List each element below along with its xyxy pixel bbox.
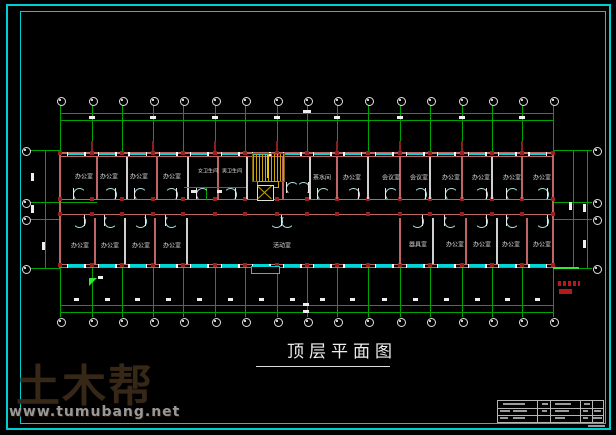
window [160,153,176,156]
grid-bubble [274,97,283,106]
grid-line-vertical [183,268,184,317]
column-marker [151,197,155,201]
window-frame [67,152,69,156]
dim-text [303,303,309,306]
window-frame [423,264,425,268]
dim-text [290,298,295,301]
grid-bubble [180,97,189,106]
column-marker [428,212,432,216]
room-label-top: 办公室 [343,173,361,182]
door-leaf [145,215,146,226]
column-marker [305,151,309,155]
window-frame [498,264,500,268]
window-frame [283,264,285,268]
grid-bubble-number [244,320,246,322]
grid-bubble [119,97,128,106]
door-arc [281,215,294,228]
door-leaf [196,188,197,199]
wall-exterior [60,267,553,269]
grid-line-vertical [368,104,369,152]
grid-bubble-number [91,320,93,322]
window [130,153,146,156]
window [407,153,423,156]
door-leaf [104,215,105,226]
window-frame [128,264,130,268]
column-marker [335,151,339,155]
dim-text [42,242,45,250]
dim-text [459,116,465,119]
door-arc [134,188,147,201]
door-arc [104,215,117,228]
dim-text [397,116,403,119]
window-frame [115,264,117,268]
window-frame [437,264,439,268]
column-marker [90,212,94,216]
partition-wall [461,157,463,199]
column-marker [335,263,339,267]
wall-exterior [552,152,554,268]
grid-line-vertical [122,104,123,152]
window [530,264,546,267]
dim-text [274,116,280,119]
column-marker [520,263,524,267]
window [376,153,392,156]
grid-bubble [459,318,468,327]
grid-line-horizontal [28,219,60,220]
column-marker [551,197,555,201]
partition-wall [309,157,311,199]
grid-line-vertical [245,268,246,317]
partition-wall [465,218,467,264]
column-marker [90,197,94,201]
grid-bubble-number [24,218,26,220]
column-marker [335,212,339,216]
dim-text [197,298,202,301]
door-arc [385,188,398,201]
partition-wall [187,157,189,199]
grid-line-horizontal [28,150,60,151]
door-leaf [486,188,487,199]
grid-bubble [489,97,498,106]
grid-bubble-number [276,320,278,322]
highlighted-line [553,267,579,270]
dim-line [60,113,553,114]
partition-wall [429,157,431,199]
grid-bubble [22,216,31,225]
area-note-text [558,281,580,286]
dim-line [573,150,574,268]
grid-bubble [427,318,436,327]
door-leaf [547,188,548,199]
grid-line-vertical [553,104,554,152]
column-marker [520,212,524,216]
stair-run [252,153,285,182]
column-marker [213,263,217,267]
grid-bubble-number [491,320,493,322]
room-label-bottom: 办公室 [446,240,464,249]
window [376,264,392,267]
grid-bubble [519,97,528,106]
window-frame [190,152,192,156]
title-underline [256,366,390,367]
grid-bubble-number [276,99,278,101]
grid-bubble-number [429,320,431,322]
partition-wall [154,218,156,264]
partition-wall [496,218,498,264]
grid-bubble-number [521,320,523,322]
grid-bubble [397,97,406,106]
window [499,264,515,267]
window-frame [515,264,517,268]
window-frame [343,152,345,156]
room-label-bottom: 办公室 [163,241,181,250]
column-marker [398,212,402,216]
column-marker [181,263,185,267]
window-frame [546,152,548,156]
grid-bubble [365,318,374,327]
window [407,264,423,267]
window-frame [146,264,148,268]
window-frame [375,152,377,156]
room-label-top: 办公室 [503,173,521,182]
window-frame [498,152,500,156]
column-marker [243,212,247,216]
window-frame [98,152,100,156]
door-leaf [176,188,177,199]
grid-bubble [57,97,66,106]
column-marker [243,263,247,267]
window-frame [528,152,530,156]
door-leaf [444,215,445,226]
column-marker [58,151,62,155]
grid-bubble [89,97,98,106]
column-marker [151,151,155,155]
title-block-text [500,417,508,419]
room-label-top: 办公室 [75,172,93,181]
grid-line-vertical [462,268,463,317]
window-frame [300,152,302,156]
grid-bubble [365,97,374,106]
partition-wall [432,218,434,264]
door-arc [444,215,457,228]
door-leaf [422,215,423,226]
title-block-text [584,403,590,405]
partition-wall [399,218,401,264]
drawing-title: 顶层平面图 [287,337,397,362]
title-block-text [583,417,588,419]
column-marker [428,151,432,155]
window-frame [176,264,178,268]
grid-bubble [22,199,31,208]
grid-bubble-number [306,99,308,101]
dim-text [135,298,140,301]
window-frame [313,264,315,268]
title-block-divider [537,400,538,423]
porch-outline [251,266,280,274]
door-leaf [385,188,386,199]
stair-rail [267,155,269,178]
dim-text [413,298,418,301]
door-leaf [286,182,287,193]
title-block-text [542,403,548,405]
door-arc [445,188,458,201]
column-marker [90,151,94,155]
window-frame [176,152,178,156]
title-block-text [555,410,569,412]
title-block-text [513,410,527,412]
title-block [497,400,604,423]
grid-bubble [550,318,559,327]
grid-bubble [334,97,343,106]
grid-bubble-number [24,149,26,151]
grid-bubble-number [367,320,369,322]
grid-bubble [150,318,159,327]
grid-bubble [304,318,313,327]
window-frame [159,152,161,156]
window-frame [84,152,86,156]
partition-wall [526,218,528,264]
grid-bubble-number [152,320,154,322]
window-frame [392,152,394,156]
grid-bubble-number [595,201,597,203]
dim-text [444,298,449,301]
window-frame [128,152,130,156]
grid-bubble-number [399,99,401,101]
grid-bubble [459,97,468,106]
column-marker [398,151,402,155]
dim-text [535,298,540,301]
grid-bubble [304,97,313,106]
room-label-bottom: 器具室 [409,240,427,249]
grid-bubble-number [595,267,597,269]
window [438,264,454,267]
title-block-divider [580,400,581,423]
grid-bubble-number [552,320,554,322]
grid-bubble-number [121,320,123,322]
dim-line [587,150,588,268]
grid-bubble [22,147,31,156]
grid-bubble-number [214,99,216,101]
room-label-bottom: 办公室 [502,240,520,249]
dim-text [334,116,340,119]
dim-text [212,116,218,119]
window-frame [528,264,530,268]
window [68,153,84,156]
grid-line-vertical [492,104,493,152]
dim-text [350,298,355,301]
partition-wall [96,157,98,199]
dim-text [303,110,311,113]
window-frame [238,264,240,268]
title-block-text [555,403,571,405]
window-frame [454,152,456,156]
grid-bubble [593,265,602,274]
window [99,264,115,267]
dim-text [583,204,586,212]
grid-bubble [334,318,343,327]
grid-bubble [274,318,283,327]
dim-text [320,298,325,301]
window-frame [437,152,439,156]
partition-wall [94,218,96,264]
window-frame [67,264,69,268]
window-frame [546,264,548,268]
grid-line-vertical [430,104,431,152]
window-frame [454,264,456,268]
window-frame [392,264,394,268]
dim-line [60,120,553,121]
window-frame [515,152,517,156]
dim-text [569,202,572,210]
door-leaf [547,215,548,226]
grid-bubble [593,147,602,156]
column-marker [490,263,494,267]
grid-bubble [489,318,498,327]
room-label-bottom: 办公室 [132,241,150,250]
window-frame [221,264,223,268]
cad-sheet: 办公室办公室办公室办公室女卫生间男卫生间茶水间办公室会议室会议室办公室办公室办公… [0,0,616,435]
grid-line-horizontal [28,268,60,269]
door-leaf [235,188,236,199]
snap-marker-tick [98,276,103,279]
window-frame [115,152,117,156]
dim-text [475,298,480,301]
room-label-bottom: 办公室 [101,241,119,250]
column-marker [213,212,217,216]
grid-bubble-number [59,99,61,101]
title-block-text [513,417,525,419]
room-label-bottom: 办公室 [71,241,89,250]
room-label-top: 办公室 [100,172,118,181]
door-leaf [506,215,507,226]
grid-bubble [397,318,406,327]
partition-wall [367,157,369,199]
column-marker [305,212,309,216]
dim-text [31,205,34,213]
grid-bubble-number [461,99,463,101]
column-marker [243,151,247,155]
title-block-divider [497,415,604,416]
door-leaf [506,188,507,199]
window [222,153,238,156]
column-marker [460,151,464,155]
room-label-top: 茶水间 [313,173,331,182]
dim-text [303,310,309,313]
door-leaf [317,188,318,199]
grid-line-vertical [153,268,154,317]
grid-bubble-number [521,99,523,101]
door-arc [196,188,209,201]
grid-line-horizontal [28,202,97,203]
window [222,264,238,267]
door-leaf [425,188,426,199]
fixture [217,190,222,193]
grid-bubble-number [491,99,493,101]
window-frame [146,152,148,156]
grid-line-vertical [245,104,246,152]
column-marker [275,197,279,201]
partition-wall [521,157,523,199]
door-arc [317,188,330,201]
partition-wall [156,157,158,199]
window-frame [361,264,363,268]
wall-exterior [60,156,553,157]
grid-line-vertical [215,268,216,317]
window-frame [207,152,209,156]
grid-line-vertical [337,268,338,317]
door-leaf [165,215,166,226]
column-marker [120,151,124,155]
door-leaf [115,188,116,199]
room-label-top: 会议室 [382,173,400,182]
column-marker [58,197,62,201]
window [314,264,330,267]
column-marker [366,151,370,155]
grid-line-vertical [60,104,61,152]
grid-line-vertical [277,268,278,317]
window [438,153,454,156]
door-leaf [445,188,446,199]
window [469,153,485,156]
window-frame [343,264,345,268]
door-leaf [73,188,74,199]
title-block-text [555,417,565,419]
grid-bubble-number [121,99,123,101]
window-frame [330,152,332,156]
title-block-text [500,410,510,412]
window [191,153,207,156]
door-leaf [308,182,309,193]
window [469,264,485,267]
title-block-text [503,403,525,405]
grid-bubble-number [461,320,463,322]
grid-bubble [593,199,602,208]
dim-text [583,240,586,248]
window-frame [207,264,209,268]
window-frame [361,152,363,156]
grid-bubble [593,216,602,225]
room-label-bottom: 办公室 [473,240,491,249]
window [530,153,546,156]
partition-wall [336,157,338,199]
title-block-text [594,410,601,412]
window-frame [406,152,408,156]
dim-text [259,298,264,301]
dim-text [150,116,156,119]
window-frame [485,152,487,156]
column-marker [120,212,124,216]
column-marker [366,212,370,216]
partition-wall [246,157,248,199]
room-label-top: 男卫生间 [222,168,242,175]
grid-bubble [212,318,221,327]
title-block-text [583,410,588,412]
grid-bubble-number [367,99,369,101]
dim-text [228,298,233,301]
dim-text [519,116,525,119]
grid-bubble [242,318,251,327]
window [499,153,515,156]
grid-bubble-number [595,149,597,151]
grid-bubble [519,318,528,327]
grid-bubble [550,97,559,106]
grid-line-vertical [183,104,184,152]
window-frame [159,264,161,268]
wall-exterior [59,152,61,268]
column-marker [120,197,124,201]
window [99,153,115,156]
column-marker [58,263,62,267]
